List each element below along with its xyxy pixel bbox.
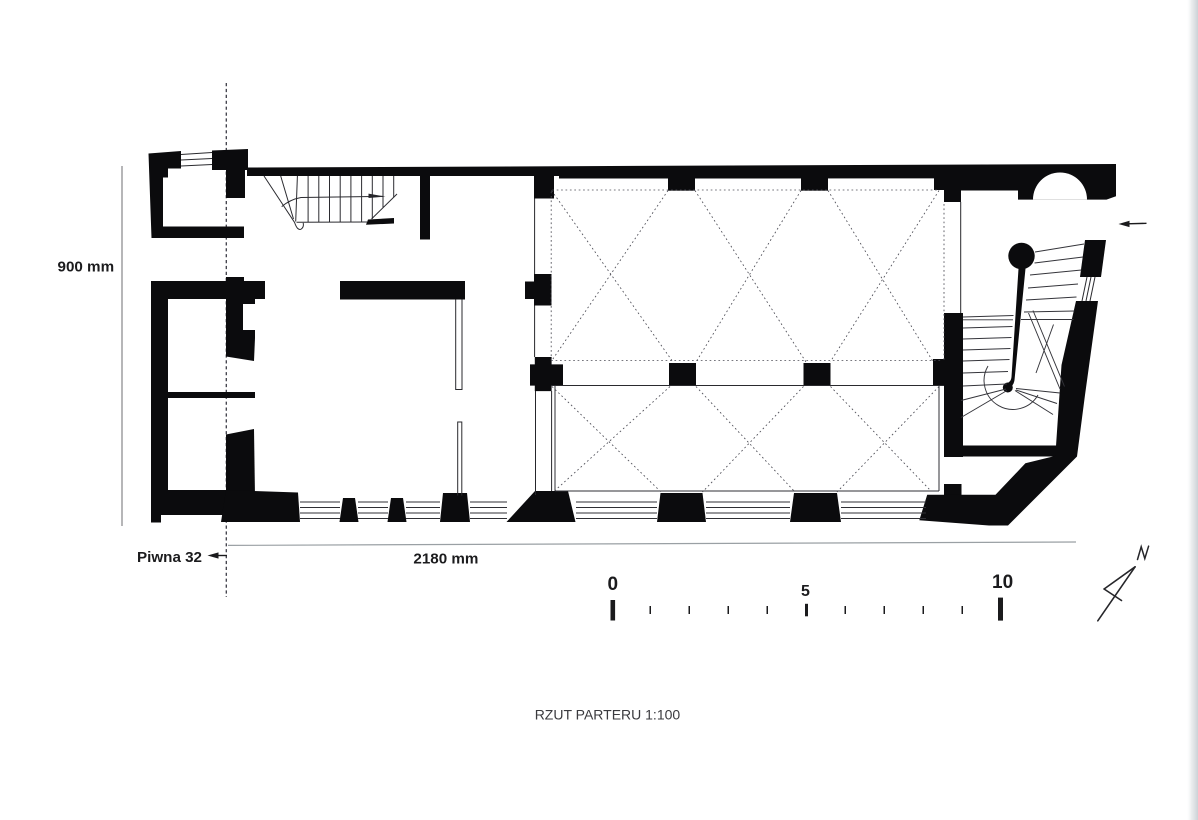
svg-text:900 mm: 900 mm — [58, 259, 115, 276]
svg-text:0: 0 — [608, 574, 619, 595]
svg-text:5: 5 — [801, 583, 810, 600]
svg-text:10: 10 — [992, 572, 1013, 593]
svg-text:2180 mm: 2180 mm — [413, 551, 478, 568]
svg-text:RZUT PARTERU 1:100: RZUT PARTERU 1:100 — [535, 707, 681, 723]
svg-text:Piwna 32: Piwna 32 — [137, 549, 202, 566]
